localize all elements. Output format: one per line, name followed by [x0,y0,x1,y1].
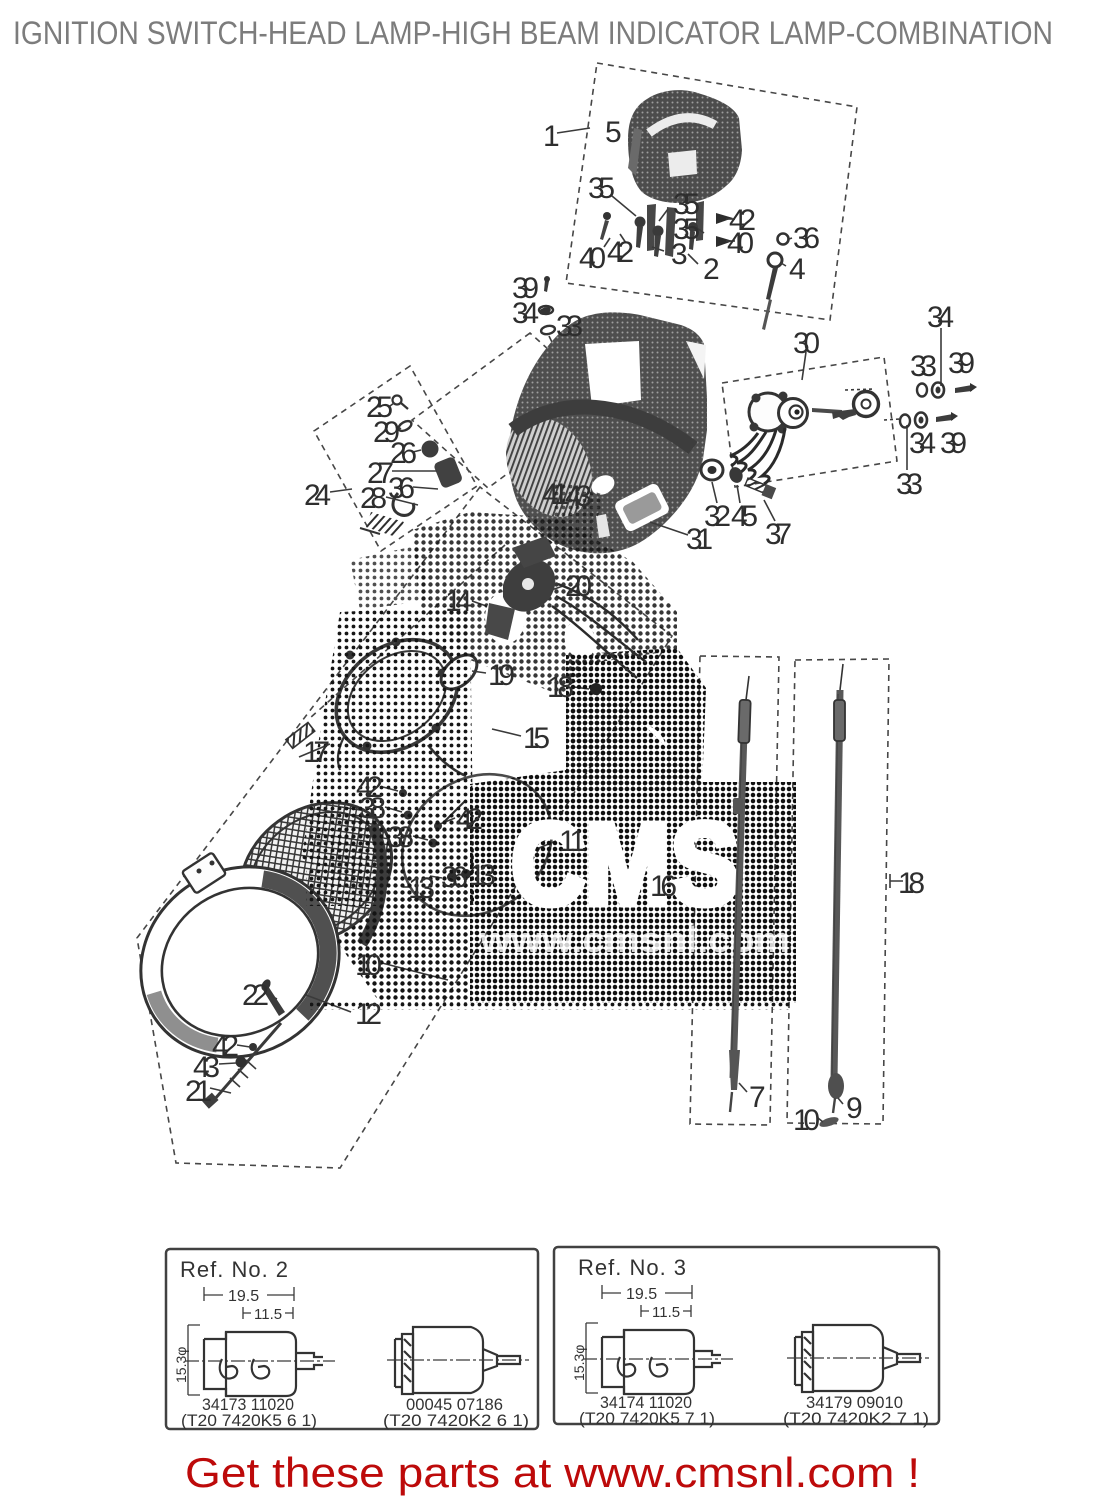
svg-text:11: 11 [559,825,586,858]
svg-text:11.5: 11.5 [652,1304,680,1321]
svg-text:(T20 7420K2 6 1): (T20 7420K2 6 1) [383,1411,529,1430]
svg-text:7: 7 [749,1081,766,1114]
svg-text:36: 36 [793,222,820,255]
svg-text:26: 26 [390,437,417,470]
svg-text:18: 18 [898,867,925,900]
svg-text:35: 35 [588,172,615,205]
svg-text:2: 2 [703,253,720,286]
svg-text:32: 32 [704,500,731,533]
svg-text:24: 24 [304,479,331,512]
svg-text:39: 39 [948,347,975,380]
svg-text:www.cmsnl.com: www.cmsnl.com [479,919,790,960]
svg-text:13: 13 [469,859,496,892]
svg-text:34: 34 [909,427,936,460]
svg-text:(T20 7420K5 7 1): (T20 7420K5 7 1) [579,1409,715,1428]
svg-text:22: 22 [242,979,269,1012]
svg-text:Ref. No. 3: Ref. No. 3 [578,1255,687,1280]
svg-text:40: 40 [727,227,754,260]
svg-text:42: 42 [607,236,634,269]
svg-text:19.5: 19.5 [228,1288,259,1305]
svg-text:36: 36 [441,861,468,894]
svg-text:16: 16 [650,870,677,903]
svg-text:Get these parts at www.cmsnl.c: Get these parts at www.cmsnl.com ! [185,1449,920,1496]
svg-text:1: 1 [543,120,560,153]
svg-text:15.3φ: 15.3φ [173,1347,189,1383]
svg-text:9: 9 [846,1092,863,1125]
svg-text:18: 18 [547,671,574,704]
svg-text:34: 34 [512,297,539,330]
svg-text:19.5: 19.5 [626,1286,657,1303]
svg-text:13: 13 [408,872,435,905]
svg-text:33: 33 [910,350,937,383]
svg-text:17: 17 [303,736,330,769]
svg-text:30: 30 [793,327,820,360]
svg-text:45: 45 [731,500,758,533]
svg-text:10: 10 [355,949,382,982]
svg-text:42: 42 [456,803,483,836]
svg-text:34: 34 [927,301,954,334]
svg-text:IGNITION SWITCH-HEAD LAMP-HIGH: IGNITION SWITCH-HEAD LAMP-HIGH BEAM INDI… [13,15,1053,51]
svg-text:19: 19 [488,659,515,692]
svg-text:15: 15 [523,722,550,755]
svg-text:11.5: 11.5 [254,1306,282,1323]
svg-text:10: 10 [793,1104,820,1137]
svg-text:Ref. No. 2: Ref. No. 2 [180,1257,289,1282]
svg-text:37: 37 [765,518,792,551]
svg-text:14: 14 [445,585,472,618]
svg-text:20: 20 [565,570,592,603]
svg-text:3: 3 [671,238,688,271]
svg-text:40: 40 [579,242,606,275]
svg-text:CMS: CMS [511,799,739,929]
svg-text:36: 36 [388,472,415,505]
svg-text:(T20 7420K5 6 1): (T20 7420K5 6 1) [181,1411,317,1430]
svg-text:12: 12 [355,998,382,1031]
svg-text:5: 5 [605,116,622,149]
svg-text:28: 28 [360,482,387,515]
svg-text:43: 43 [565,480,592,513]
svg-text:(T20 7420K2 7 1): (T20 7420K2 7 1) [783,1409,929,1428]
svg-text:38: 38 [359,792,386,825]
svg-text:15.3φ: 15.3φ [571,1345,587,1381]
svg-text:33: 33 [556,310,583,343]
svg-text:21: 21 [185,1075,212,1108]
svg-text:39: 39 [940,427,967,460]
svg-text:33: 33 [896,468,923,501]
svg-text:38: 38 [387,821,414,854]
svg-text:4: 4 [789,253,806,286]
